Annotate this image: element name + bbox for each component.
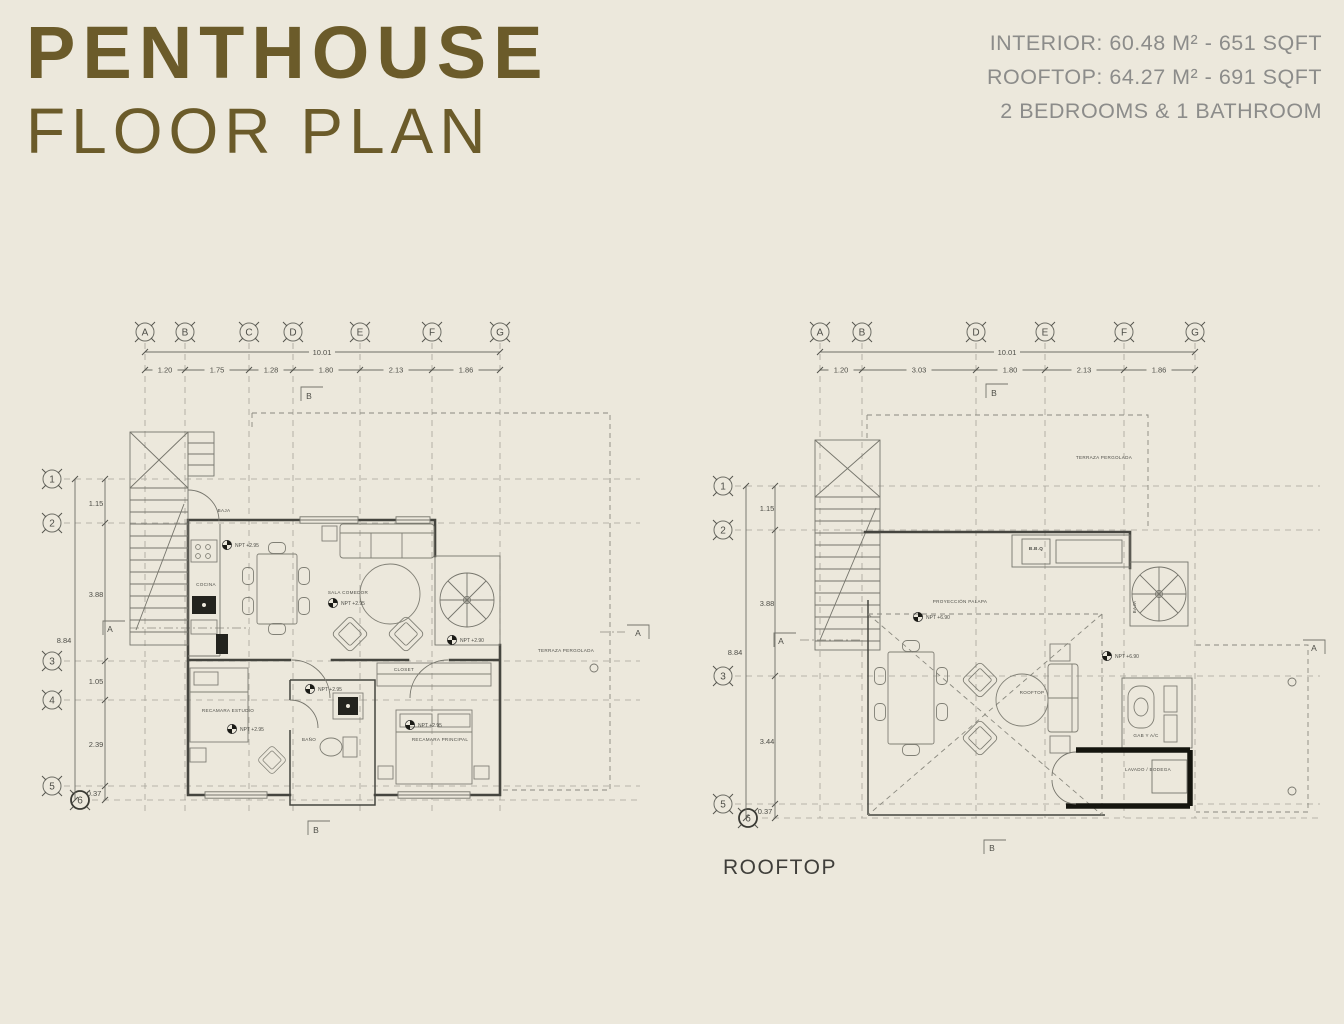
rooftop-lavado-room [1052,750,1190,806]
interior-labels: BAJA COCINA NPT +2.95 SALA COMEDOR NPT +… [196,508,595,742]
grid-letter: A [817,328,824,339]
label-baja: BAJA [218,508,231,513]
rooftop-lounge-set [962,644,1078,756]
grid-number: 5 [49,782,55,793]
dim-segment: 1.28 [264,366,279,375]
label-npt-kitchen: NPT +2.95 [235,543,259,549]
grid-letter: E [357,328,364,339]
rooftop-kitchenette [1012,535,1130,567]
grid-number: 5 [720,800,726,811]
label-npt-hall: NPT +2.95 [318,687,342,693]
dim-segment: 2.13 [1077,366,1092,375]
dim-segment: 0.37 [758,807,773,816]
grid-number: 3 [720,672,726,683]
grid-letter: C [245,328,252,339]
rooftop-walls [865,532,1130,815]
dim-segment: 3.44 [760,737,775,746]
dim-segment: 3.88 [760,599,775,608]
label-npt-bedroom1: NPT +2.95 [240,727,264,733]
section-marker-b: B [306,391,312,401]
rooftop-terrace-right [1196,645,1308,812]
interior-dining-set [243,543,310,635]
grid-letter: D [972,328,979,339]
rooftop-plan: A B D E F G 1 2 3 5 6 10.01 1.20 3.03 1.… [713,322,1325,854]
dim-segment: 1.15 [760,504,775,513]
label-sala-comedor: SALA COMEDOR [328,590,369,595]
label-recamara-estudio: RECAMARA ESTUDIO [202,708,254,713]
grid-letter: A [142,328,149,339]
section-marker-a: A [107,624,113,634]
grid-letter: G [496,328,504,339]
rooftop-staircase [815,440,880,650]
rooftop-caption: ROOFTOP [723,856,837,880]
label-gab-ac: GAB Y A/C [1133,733,1159,738]
dim-segment: 1.80 [1003,366,1018,375]
grid-number: 4 [49,696,55,707]
interior-plan: A B C D E F G 1 2 3 4 5 6 10.01 1.20 1.7… [42,322,649,835]
label-proyeccion-palapa: PROYECCIÓN PALAPA [933,598,988,604]
label-baja: BAJA [1132,600,1137,613]
rooftop-spiral-stair [1130,562,1188,626]
grid-letter: E [1042,328,1049,339]
dim-segment: 0.37 [87,789,102,798]
section-marker-b: B [313,825,319,835]
section-marker-a: A [778,636,784,646]
label-cocina: COCINA [196,582,216,587]
grid-letter: F [429,328,435,339]
interior-terrace [252,413,610,790]
grid-number: 1 [49,475,55,486]
label-bano: BAÑO [302,736,316,742]
label-recamara-principal: RECAMARA PRINCIPAL [412,737,469,742]
grid-letter: F [1121,328,1127,339]
dim-segment: 1.05 [89,677,104,686]
label-bbq: B.B.Q [1029,546,1043,551]
section-marker-a: A [635,628,641,638]
label-lavado-bodega: LAVADO / BODEGA [1125,767,1172,772]
interior-walls [188,490,500,805]
rooftop-grid-lines [735,343,1320,818]
section-marker-b: B [991,388,997,398]
grid-number: 2 [49,519,55,530]
dim-segment: 1.75 [210,366,225,375]
rooftop-section-markers: B B A A [774,384,1325,854]
label-rooftop-small: ROOFTOP [1020,690,1045,695]
label-terraza: TERRAZA PERGOLADA [538,648,595,653]
grid-letter: B [182,328,189,339]
interior-dimensions: 10.01 1.20 1.75 1.28 1.80 2.13 1.86 8.84… [57,348,503,803]
section-marker-b: B [989,843,995,853]
window [205,517,470,798]
floor-plan-canvas: A B C D E F G 1 2 3 4 5 6 10.01 1.20 1.7… [0,0,1344,1024]
grid-letter: G [1191,328,1199,339]
interior-living-set [322,524,434,652]
dim-total-width: 10.01 [313,348,332,357]
dim-segment: 2.13 [389,366,404,375]
interior-spiral-stair [435,556,500,645]
label-npt-side: NPT +6.90 [1115,654,1139,660]
dim-segment: 1.80 [319,366,334,375]
rooftop-terrace-top [867,415,1148,530]
dim-segment: 2.39 [89,740,104,749]
rooftop-labels: TERRAZA PERGOLADA PROYECCIÓN PALAPA NPT … [913,455,1171,772]
dim-segment: 1.86 [1152,366,1167,375]
label-npt-terrace: NPT +2.90 [460,638,484,644]
dim-segment: 1.20 [834,366,849,375]
grid-number: 1 [720,482,726,493]
grid-letter: D [289,328,296,339]
grid-number: 2 [720,526,726,537]
interior-bathroom-fixtures [320,693,363,757]
dim-segment: 1.20 [158,366,173,375]
interior-bedroom1-furniture [190,668,287,775]
dim-segment: 1.15 [89,499,104,508]
dim-segment: 3.88 [89,590,104,599]
rooftop-dining-set [875,641,948,756]
label-npt-living: NPT +2.95 [341,601,365,607]
label-terraza-pergolada: TERRAZA PERGOLADA [1076,455,1133,460]
label-npt-deck: NPT +6.90 [926,615,950,621]
dim-total-height: 8.84 [57,636,72,645]
section-marker-a: A [1311,643,1317,653]
grid-letter: B [859,328,866,339]
interior-kitchen [188,524,228,656]
dim-total-width: 10.01 [998,348,1017,357]
label-npt-bedroom2: NPT +2.95 [418,723,442,729]
dim-segment: 1.86 [459,366,474,375]
label-closet: CLOSET [394,667,414,672]
dim-total-height: 8.84 [728,648,743,657]
dim-segment: 3.03 [912,366,927,375]
grid-number: 3 [49,657,55,668]
